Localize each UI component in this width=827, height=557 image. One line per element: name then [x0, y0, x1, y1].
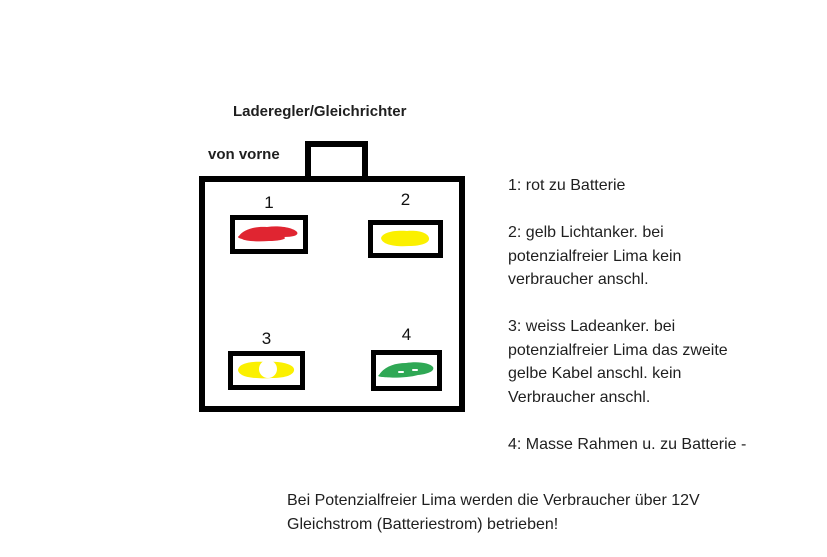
terminal-slot-2	[368, 220, 443, 258]
legend-line: gelbe Kabel anschl. kein	[508, 362, 808, 386]
connector-tab	[305, 141, 368, 182]
view-label: von vorne	[208, 146, 280, 163]
wire-blob-yellow	[381, 231, 429, 246]
slot-number-4: 4	[371, 325, 442, 345]
footer-line: Gleichstrom (Batteriestrom) betrieben!	[287, 513, 807, 537]
legend-line: potenzialfreier Lima kein	[508, 245, 808, 269]
legend-item-3: 3: weiss Ladeanker. bei potenzialfreier …	[508, 315, 808, 409]
terminal-slot-4	[371, 350, 442, 391]
legend-line: 2: gelb Lichtanker. bei	[508, 221, 808, 245]
diagram-title: Laderegler/Gleichrichter	[233, 103, 406, 120]
wire-blob-red	[238, 226, 297, 241]
green-blob-gap	[398, 371, 404, 373]
legend-line: potenzialfreier Lima das zweite	[508, 339, 808, 363]
slot-number-2: 2	[368, 190, 443, 210]
slot-number-1: 1	[230, 193, 308, 213]
yellow-wire-icon	[373, 225, 438, 253]
legend-item-2: 2: gelb Lichtanker. bei potenzialfreier …	[508, 221, 808, 292]
legend: 1: rot zu Batterie 2: gelb Lichtanker. b…	[508, 174, 808, 456]
terminal-slot-1	[230, 215, 308, 254]
slot-number-3: 3	[228, 329, 305, 349]
red-wire-icon	[235, 220, 303, 249]
terminal-slot-3	[228, 351, 305, 390]
legend-line: verbraucher anschl.	[508, 268, 808, 292]
legend-item-1: 1: rot zu Batterie	[508, 174, 808, 198]
legend-line: 4: Masse Rahmen u. zu Batterie -	[508, 433, 808, 457]
yellow-white-wire-icon	[233, 356, 300, 385]
legend-line: 3: weiss Ladeanker. bei	[508, 315, 808, 339]
legend-item-4: 4: Masse Rahmen u. zu Batterie -	[508, 433, 808, 457]
footer-note: Bei Potenzialfreier Lima werden die Verb…	[287, 489, 807, 537]
footer-line: Bei Potenzialfreier Lima werden die Verb…	[287, 489, 807, 513]
green-wire-icon	[376, 355, 437, 386]
legend-line: 1: rot zu Batterie	[508, 174, 808, 198]
wire-white-center	[259, 360, 277, 378]
legend-line: Verbraucher anschl.	[508, 386, 808, 410]
wire-blob-green	[378, 362, 433, 377]
wiring-diagram: Laderegler/Gleichrichter von vorne 1 2 3…	[0, 0, 827, 557]
green-blob-gap	[412, 369, 418, 371]
